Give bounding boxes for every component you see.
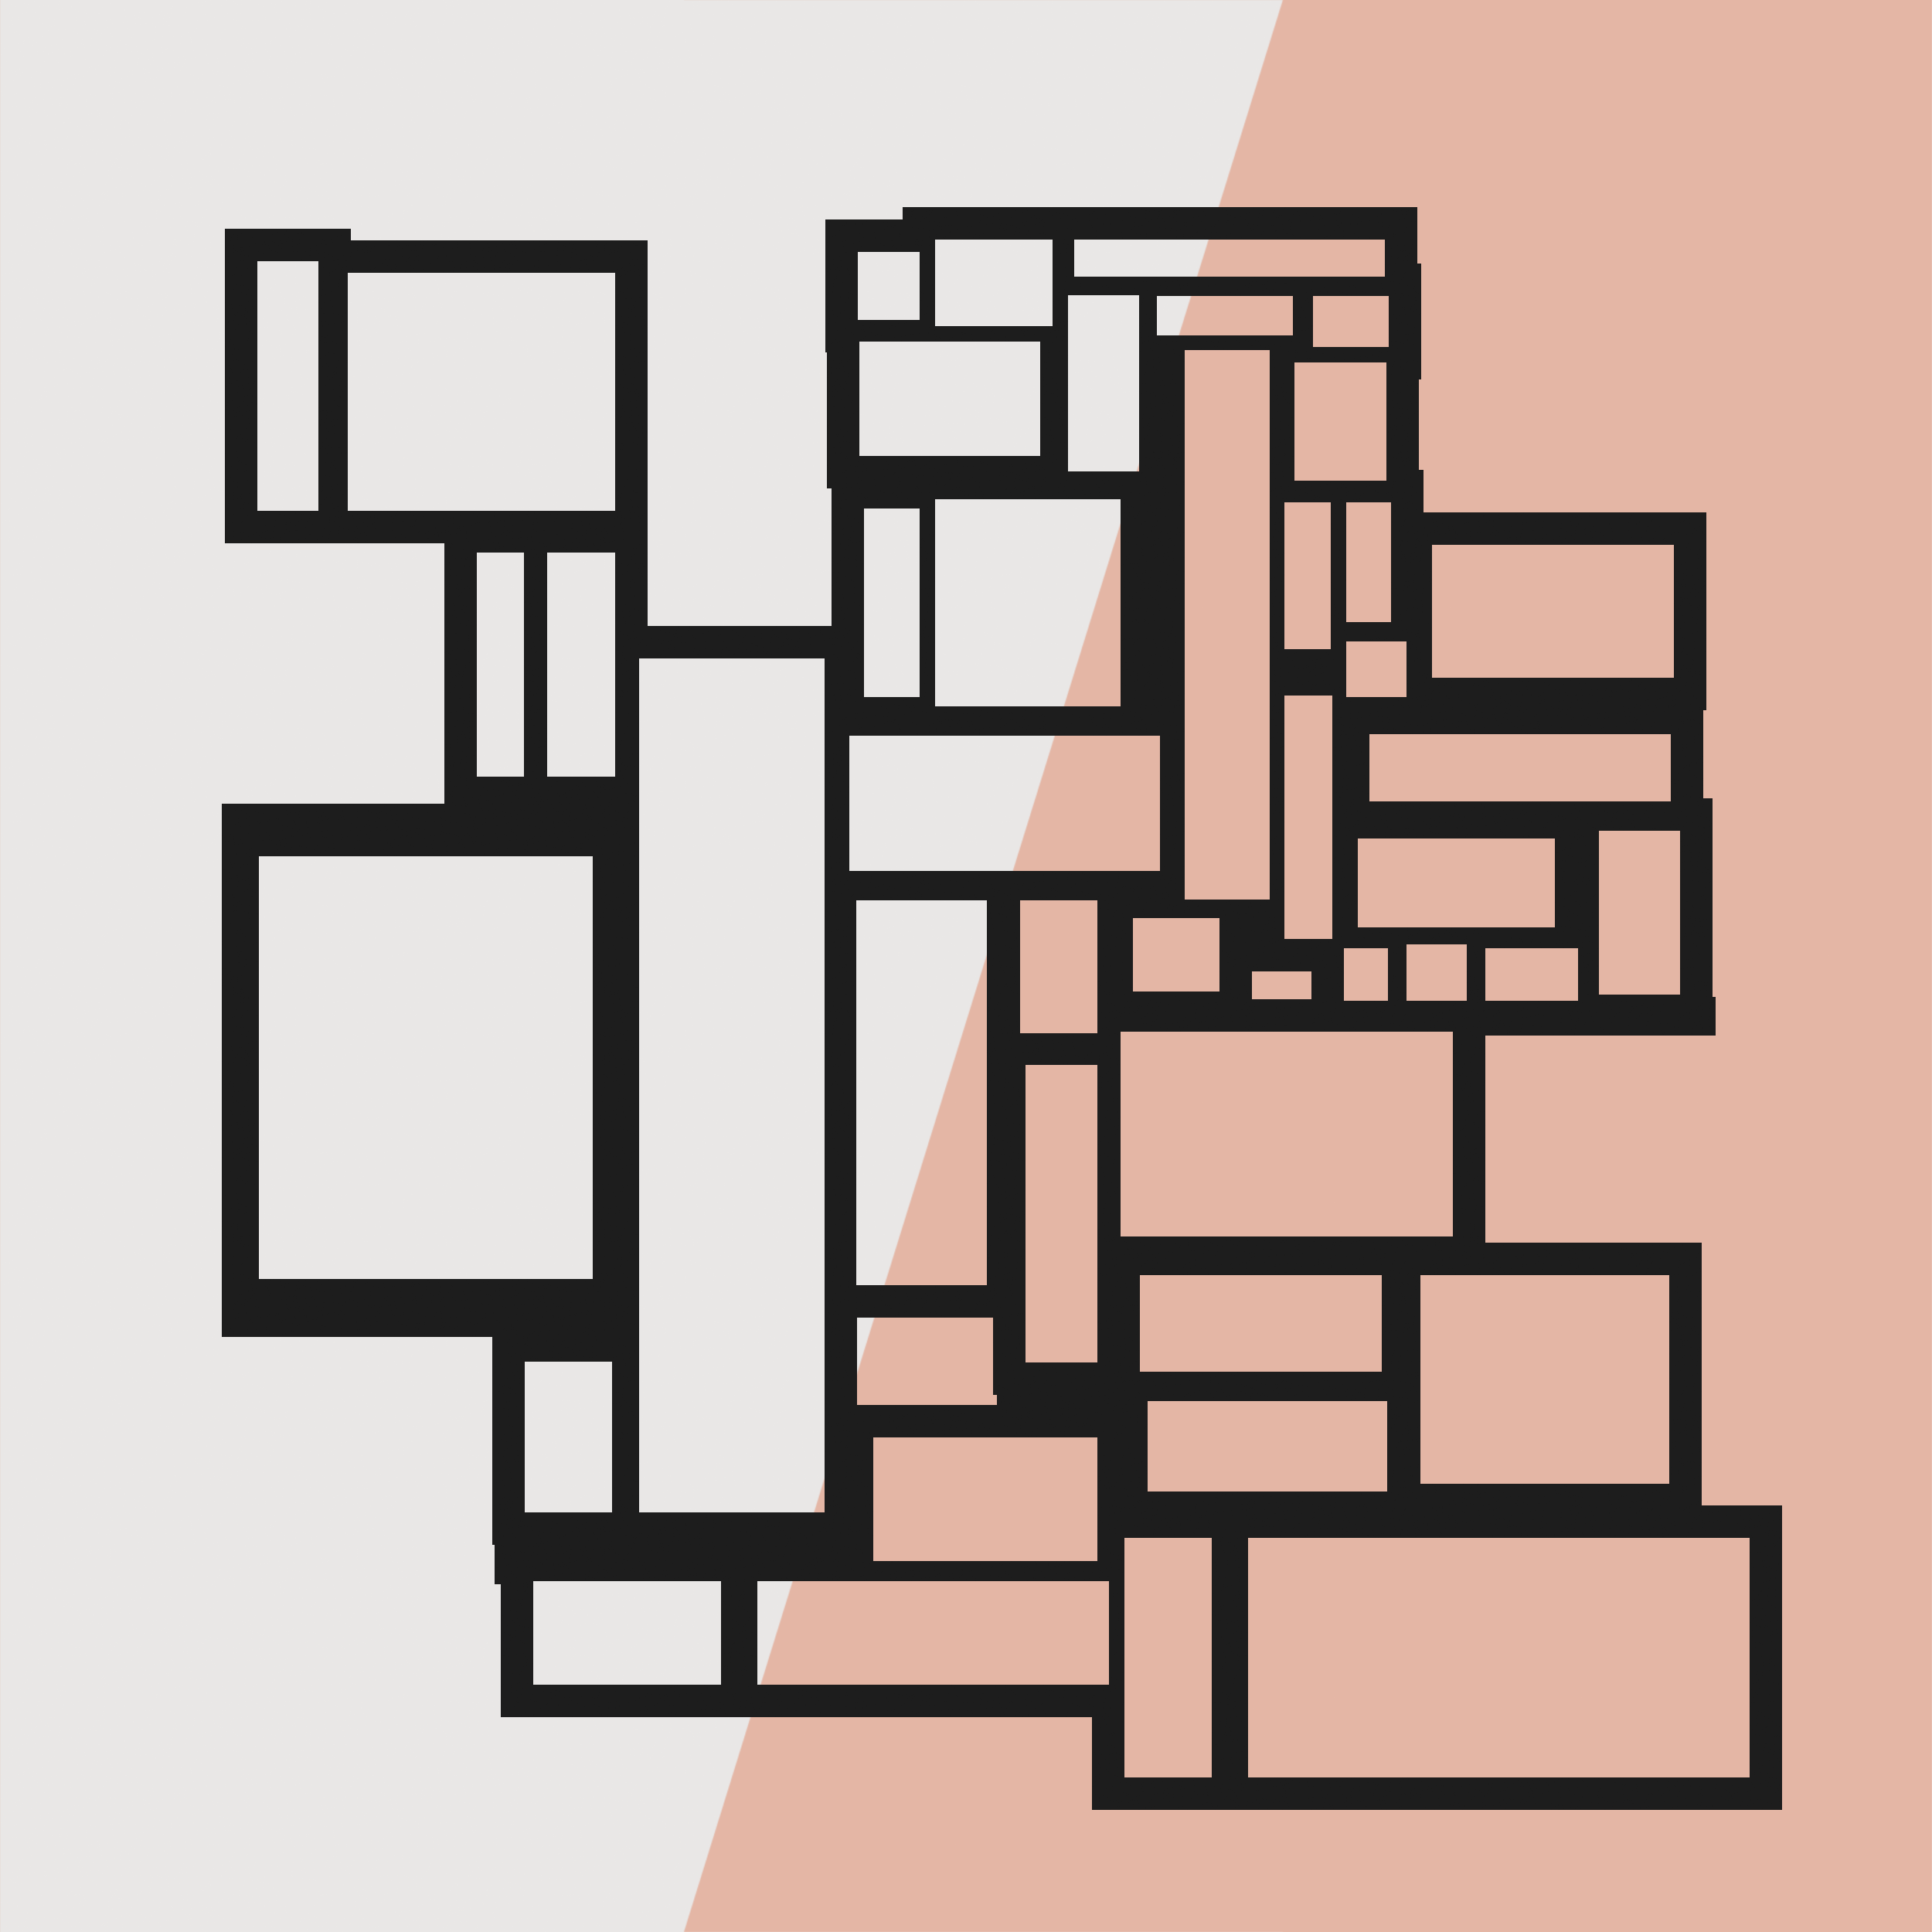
grain-overlay xyxy=(0,0,1932,1932)
abstract-composition-svg xyxy=(0,0,1932,1932)
artwork-canvas xyxy=(0,0,1932,1932)
